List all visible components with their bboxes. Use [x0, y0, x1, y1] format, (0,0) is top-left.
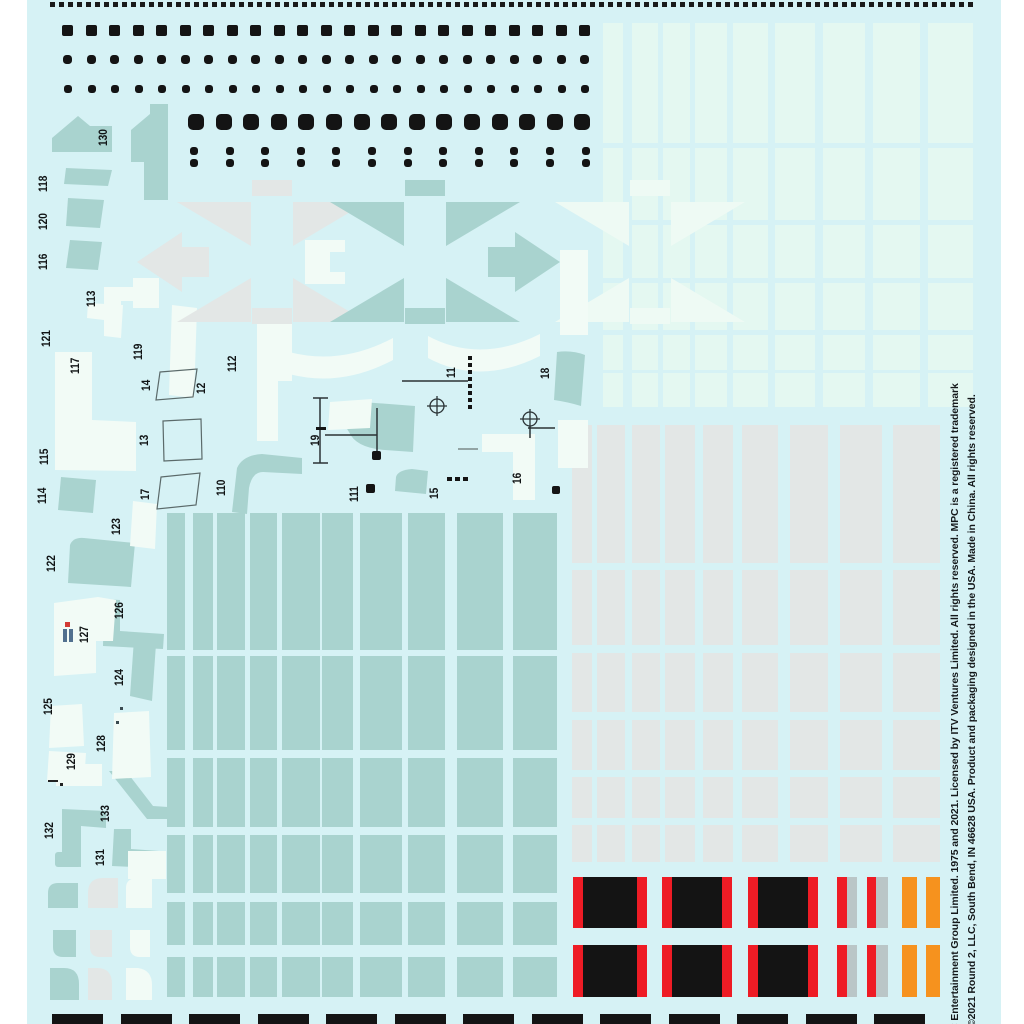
decal-number-11: 11 — [446, 367, 458, 378]
decal-number-115: 115 — [39, 449, 51, 465]
decal-number-130: 130 — [98, 129, 110, 146]
decal-number-110: 110 — [216, 480, 228, 496]
decal-110-shape — [232, 454, 302, 514]
decal-18-shape — [554, 351, 585, 406]
decal-number-19: 19 — [310, 435, 322, 446]
decal-number-112: 112 — [227, 356, 239, 372]
decal-number-116: 116 — [38, 254, 50, 270]
crosshair-register-marks — [427, 396, 540, 429]
decal-number-12: 12 — [196, 383, 208, 394]
decal-16-square — [552, 486, 560, 494]
decal-number-113: 113 — [86, 291, 98, 307]
decal-118-shape — [64, 168, 112, 186]
decal-number-120: 120 — [38, 213, 50, 230]
decal-120-shape — [66, 198, 104, 228]
decal-number-132: 132 — [44, 822, 56, 839]
decal-number-118: 118 — [38, 176, 50, 192]
copyright-line-1: C Entertainment Group Limited. 1975 and … — [949, 383, 961, 1024]
decal-15-dashes — [447, 477, 452, 481]
decal-number-121: 121 — [41, 330, 53, 347]
decal-111-teal-shape — [395, 469, 428, 494]
decal-number-18: 18 — [540, 368, 552, 379]
teal-x-motif-decal — [330, 180, 560, 324]
decal-number-131: 131 — [95, 849, 107, 866]
decal-13-outline — [163, 419, 202, 461]
decal-number-123: 123 — [111, 518, 123, 535]
decal-number-128: 128 — [96, 735, 108, 752]
decal-number-127: 127 — [79, 626, 91, 643]
decal-number-119: 119 — [133, 344, 145, 360]
decal-112-shape — [257, 320, 292, 441]
decal-number-15: 15 — [429, 488, 441, 499]
copyright-line-2: ©2021 Round 2, LLC, South Bend, IN 46628… — [966, 394, 978, 1024]
decal-number-125: 125 — [43, 698, 55, 715]
decal-111-square — [366, 484, 375, 493]
quarter-circle-decals — [48, 878, 152, 1000]
decal-123-shape — [130, 501, 157, 549]
decal-114-shape — [58, 477, 96, 513]
decal-122-shape — [68, 538, 135, 587]
decal-number-133: 133 — [100, 805, 112, 822]
decal-number-126: 126 — [114, 602, 126, 619]
decal-121-shape — [87, 303, 123, 338]
decal-16-shape — [482, 434, 535, 500]
decal-number-117: 117 — [70, 358, 82, 374]
decal-number-17: 17 — [140, 489, 152, 500]
decal-number-16: 16 — [512, 473, 524, 484]
decal-number-13: 13 — [139, 435, 151, 446]
middle-cream-decals — [328, 399, 535, 500]
decal-116-shape — [66, 240, 102, 270]
decal-number-122: 122 — [46, 555, 58, 572]
irregular-decals-layer — [0, 0, 1024, 1024]
decal-number-111: 111 — [349, 486, 361, 502]
decal-number-129: 129 — [66, 753, 78, 770]
decal-number-114: 114 — [37, 488, 49, 504]
decal-number-124: 124 — [114, 669, 126, 686]
decal-130-shape-b — [131, 104, 168, 200]
decal-number-14: 14 — [141, 380, 153, 391]
decal-124-shape — [130, 639, 156, 701]
decal-17-outline — [157, 473, 200, 509]
decal-115-shape — [61, 433, 91, 467]
decal-sheet: 1301181201161131211171191121412131118191… — [0, 0, 1024, 1024]
